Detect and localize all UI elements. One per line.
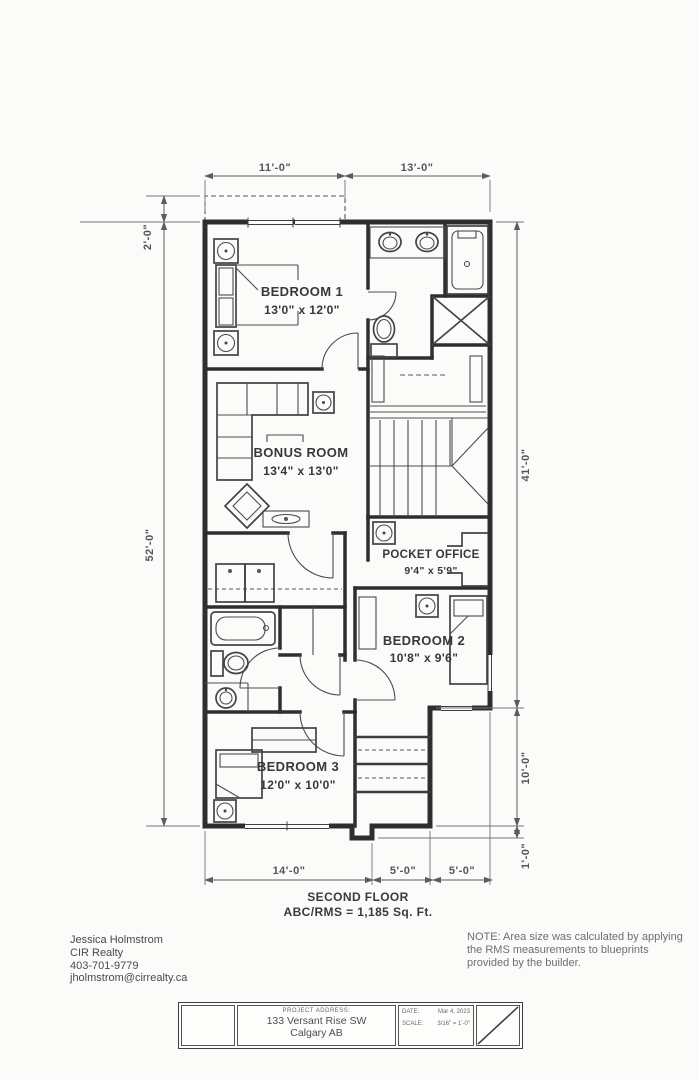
label-bracket [267, 435, 303, 442]
title-block-address-cell: PROJECT ADDRESS: 133 Versant Rise SW Cal… [237, 1005, 396, 1046]
dim-label: 52'-0" [144, 529, 156, 562]
rms-note: NOTE: Area size was calculated by applyi… [467, 931, 685, 970]
diagonal-line [477, 1006, 519, 1045]
room-size: 13'4" x 13'0" [263, 464, 339, 478]
walk-in-closet-shelves [370, 356, 486, 412]
floor-plan-drawing: 11'-0" 13'-0" 2'-0" 52'-0" 41'-0" 10'-0"… [0, 0, 698, 930]
title-block: PROJECT ADDRESS: 133 Versant Rise SW Cal… [178, 1002, 523, 1049]
contact-name: Jessica Holmstrom [70, 934, 187, 947]
laundry-fixtures [216, 564, 274, 602]
shower-icon [447, 226, 488, 294]
address-line2: Calgary AB [238, 1028, 395, 1040]
ceiling-fixture-icon [416, 595, 438, 617]
scale-label: SCALE: [402, 1020, 423, 1029]
title-block-meta-cell: DATE: Mar 4, 2023 SCALE: 3/16" = 1'-0" [398, 1005, 474, 1046]
address-line1: 133 Versant Rise SW [238, 1016, 395, 1028]
contact-company: CIR Realty [70, 947, 187, 960]
dim-label: 13'-0" [401, 162, 434, 174]
interior-walls [205, 222, 490, 826]
bed-icon [216, 750, 262, 798]
room-size: 9'4" x 5'9" [404, 565, 457, 577]
contact-email: jholmstrom@cirrealty.ca [70, 972, 187, 985]
dim-label: 2'-0" [142, 224, 154, 250]
room-name: POCKET OFFICE [382, 549, 479, 561]
area-rug-icon [225, 484, 269, 528]
ceiling-fixture-icon [214, 800, 236, 822]
ceiling-fixture-icon [214, 239, 238, 263]
floor-area: ABC/RMS = 1,185 Sq. Ft. [18, 905, 698, 920]
room-size: 10'8" x 9'6" [390, 651, 459, 665]
dim-label: 5'-0" [449, 865, 475, 877]
dim-label: 10'-0" [520, 752, 532, 785]
room-size: 13'0" x 12'0" [264, 303, 340, 317]
date-value: Mar 4, 2023 [438, 1008, 470, 1017]
main-bath-fixtures [211, 612, 275, 708]
ceiling-fixture-icon [373, 522, 395, 544]
title-block-empty-cell [181, 1005, 235, 1046]
dresser-icon [252, 728, 316, 752]
bathtub-icon [211, 612, 275, 645]
ceiling-fixture-icon [313, 392, 334, 413]
room-name: BEDROOM 1 [261, 284, 343, 299]
contact-block: Jessica Holmstrom CIR Realty 403-701-977… [70, 934, 187, 985]
toilet-icon [211, 651, 248, 676]
contact-phone: 403-701-9779 [70, 960, 187, 973]
dim-label: 5'-0" [390, 865, 416, 877]
room-size: 12'0" x 10'0" [260, 778, 336, 792]
dim-label: 41'-0" [520, 449, 532, 482]
toilet-icon [371, 316, 397, 357]
floor-plan-page: { "plan": { "title": "SECOND FLOOR", "ar… [0, 0, 698, 1080]
sink-icon [416, 233, 438, 252]
sink-icon [216, 688, 236, 708]
linen-closet-x-icon [432, 296, 490, 345]
room-name: BEDROOM 3 [257, 759, 339, 774]
dresser-icon [359, 597, 376, 649]
dim-label: 11'-0" [259, 162, 291, 174]
dim-label: 14'-0" [273, 865, 306, 877]
sink-icon [379, 233, 401, 252]
title-block-diagonal-cell [476, 1005, 520, 1046]
staircase [368, 418, 488, 517]
plan-title-block: SECOND FLOOR ABC/RMS = 1,185 Sq. Ft. [18, 890, 698, 919]
scale-value: 3/16" = 1'-0" [437, 1020, 470, 1029]
ceiling-fixture-icon [214, 331, 238, 355]
door-swings [240, 292, 448, 756]
exterior-walls [205, 222, 490, 838]
project-address-label: PROJECT ADDRESS: [238, 1008, 395, 1014]
bedroom3-fixtures [214, 728, 316, 822]
room-name: BEDROOM 2 [383, 633, 465, 648]
floor-title: SECOND FLOOR [18, 890, 698, 905]
dimension-lines [164, 176, 517, 880]
room-name: BONUS ROOM [254, 445, 349, 460]
date-label: DATE: [402, 1008, 419, 1017]
tv-console-icon [263, 511, 309, 527]
dim-label: 1'-0" [520, 843, 532, 869]
